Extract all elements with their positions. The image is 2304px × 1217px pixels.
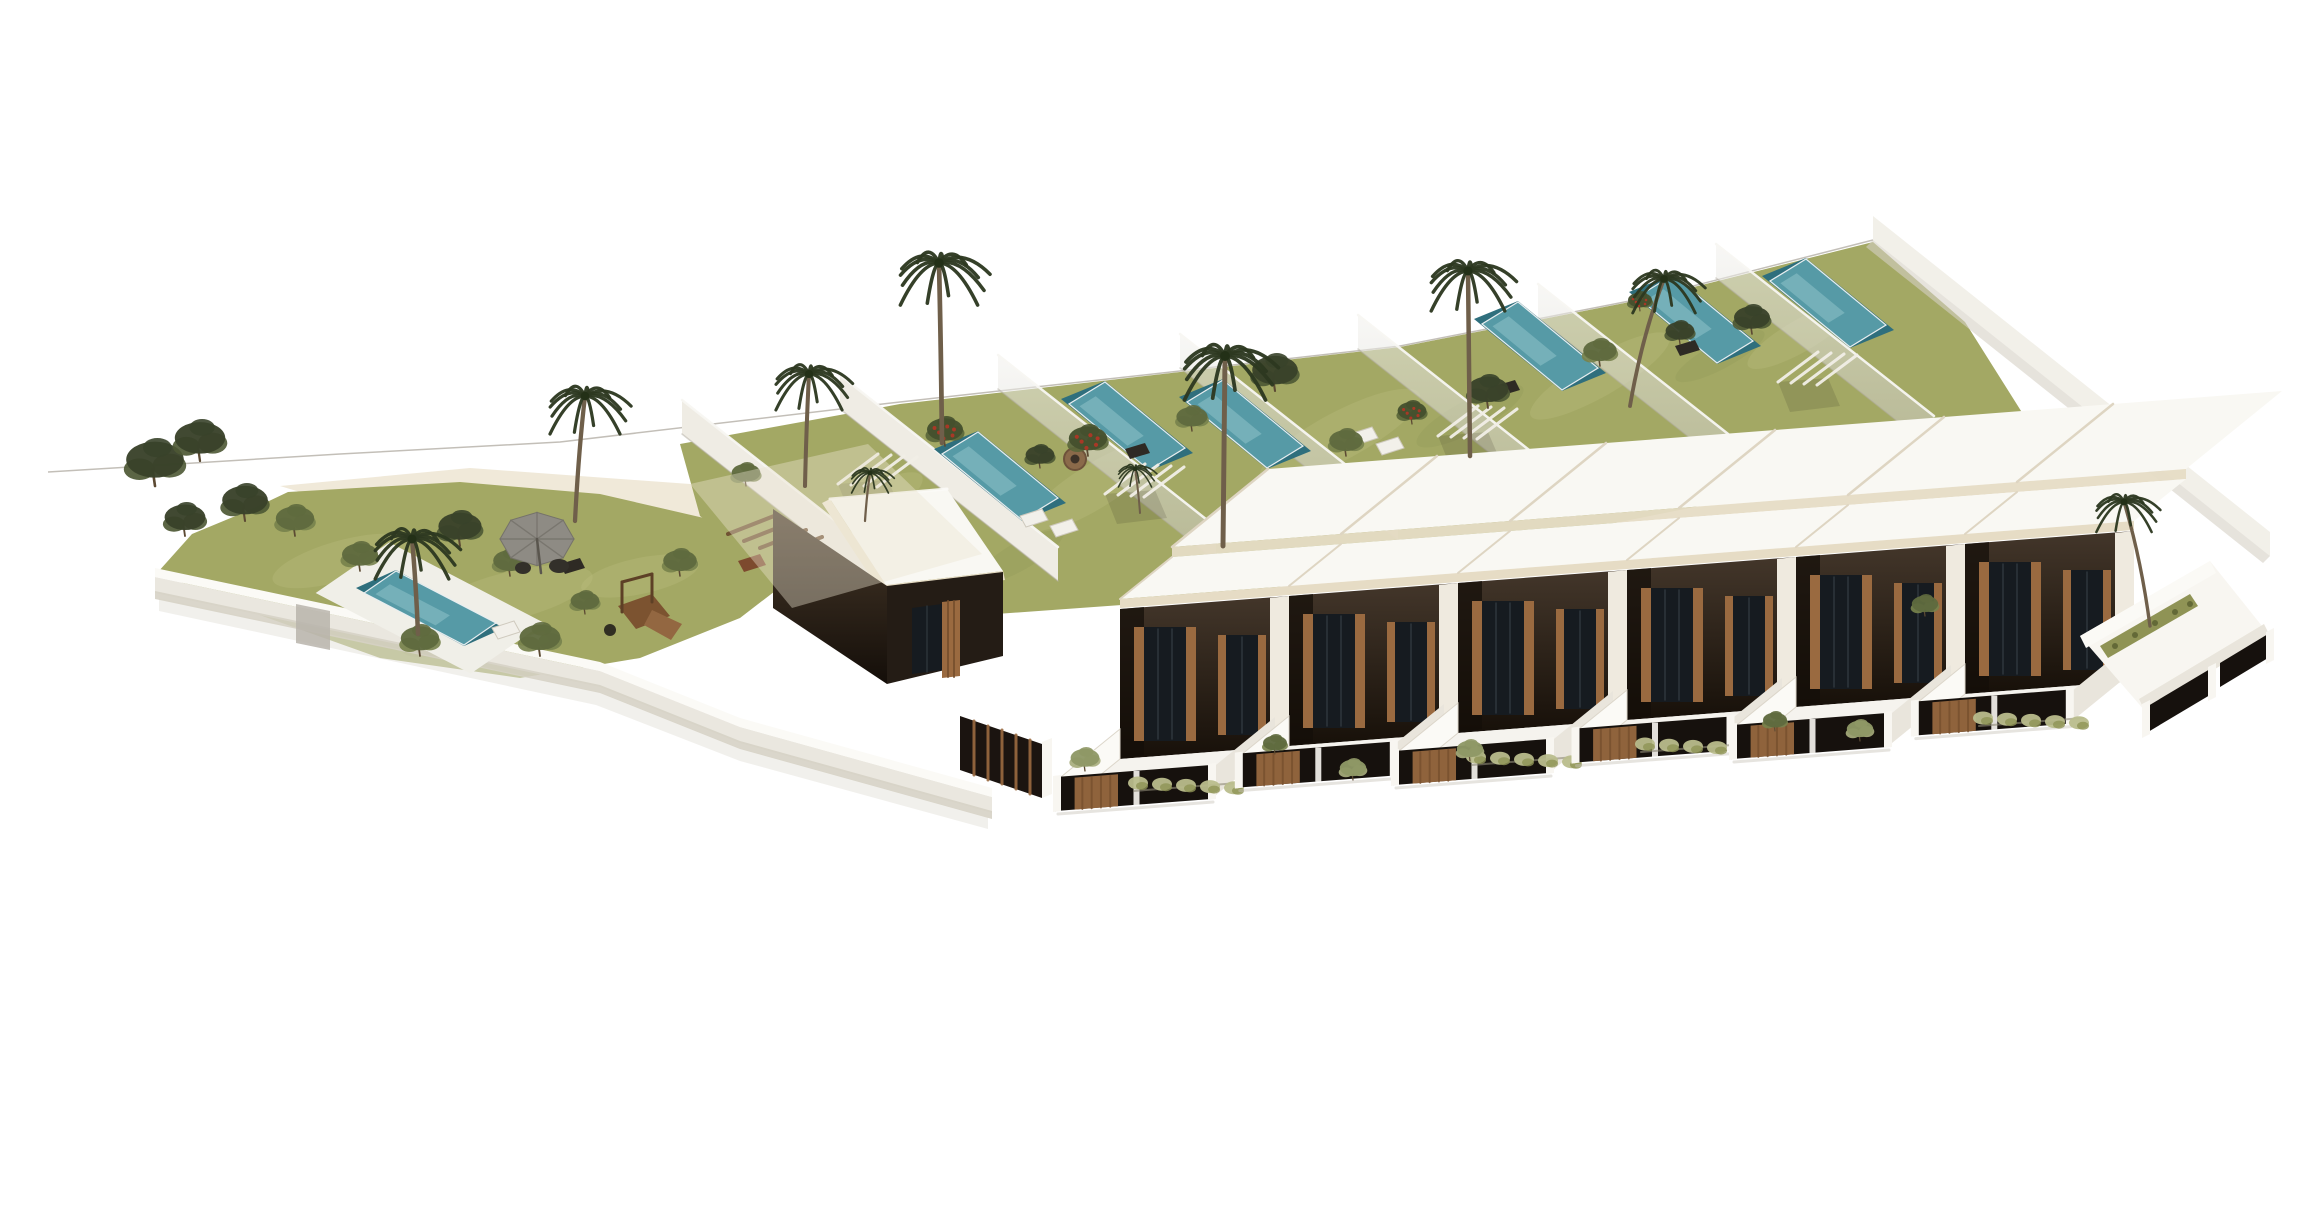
planter-shrub [2005,718,2017,726]
window-wood [2031,562,2041,676]
fruit [951,434,955,438]
foliage [1339,428,1356,439]
fence-gate [1256,751,1299,786]
window-wood [1934,583,1942,683]
foliage [1079,747,1093,757]
window-glass [1144,627,1186,741]
planter-shrub [1208,786,1220,794]
window-wood [1524,601,1534,715]
planter-dot [2152,620,2158,626]
villa-garage-post [1042,738,1052,798]
window-wood [1303,614,1313,728]
planter-shrub [1498,757,1510,765]
planter-shrub [2077,722,2089,730]
palm-crown [1464,267,1473,276]
foliage [1855,719,1868,728]
foliage [1745,304,1763,316]
window-glass [1313,614,1355,728]
fruit [1409,416,1412,419]
window-glass [1482,601,1524,715]
window-wood [1387,622,1395,722]
window-wood [1693,588,1703,702]
tree [173,419,228,461]
window-wood [1894,583,1902,683]
palm-crown [2121,499,2128,506]
villa-wood-door [942,600,960,678]
fruit [933,426,937,430]
window-glass [1651,588,1693,702]
corner-post-1 [2142,700,2150,738]
fence-post [1391,749,1399,786]
fruit [1094,443,1098,447]
fruit [1418,409,1421,412]
planter-shrub [1522,758,1534,766]
corner-post-2 [2208,663,2216,701]
window-wood [1258,635,1266,735]
window-wood [1810,575,1820,689]
fence-post [1053,775,1061,812]
fruit [1406,412,1409,415]
window-wood [1596,609,1604,709]
palm-crown [934,258,943,267]
palm-crown [408,535,417,544]
window-wood [1765,596,1773,696]
palm-crown [868,471,873,476]
fence-post [1884,711,1892,748]
fence-post [1729,723,1737,760]
palm-trunk [939,263,942,443]
planter-shrub [1160,783,1172,791]
foliage [1480,374,1500,388]
planter-shrub [2053,721,2065,729]
foliage [1348,758,1361,767]
planter-shrub [1643,743,1655,751]
window-wood [1725,596,1733,696]
fence-gate [1075,774,1118,809]
planter-dot [2172,609,2178,615]
palm-trunk [1223,356,1225,546]
foliage [412,624,431,637]
architectural-rendering [40,16,2304,1201]
palm-trunk [1468,271,1470,456]
foliage [579,590,593,600]
foliage [1034,444,1048,454]
palm-crown [805,370,813,378]
fruit [952,428,956,432]
palm-crown [1133,467,1137,471]
planter-shrub [1136,782,1148,790]
foliage [1593,338,1610,349]
window-wood [1427,622,1435,722]
foliage [1920,594,1933,603]
fruit [1402,408,1405,411]
foliage [236,483,259,498]
window-glass [1820,575,1862,689]
foliage [1465,739,1478,748]
planter-shrub [2029,719,2041,727]
foliage [451,510,473,524]
planter-shrub [1474,756,1486,764]
foliage [1186,405,1202,415]
fruit [945,425,949,429]
fruit [1084,446,1088,450]
foliage [353,541,371,553]
fence-gate [1413,748,1456,783]
window-wood [1556,609,1564,709]
fruit [1096,436,1100,440]
foliage [143,438,172,457]
fruit [1075,435,1079,439]
palm-crown [1660,275,1668,283]
parasol-chair [549,559,569,573]
fruit [1080,440,1084,444]
foliage [532,622,552,636]
fruit [1412,407,1415,410]
planter-dot [2187,601,2193,607]
planter-shrub [1715,747,1727,755]
window-wood [1218,635,1226,735]
palm-crown [1220,351,1230,361]
fruit [1416,414,1419,417]
window-wood [1186,627,1196,741]
wall-gate [296,604,330,650]
fence-post [1315,748,1321,782]
planter-shrub [1184,784,1196,792]
window-wood [1641,588,1651,702]
foliage [287,504,306,517]
foliage [1270,734,1282,742]
foliage [177,502,197,516]
playground-tire [604,624,616,636]
planter-shrub [1667,744,1679,752]
fence-post [1911,700,1919,737]
window-wood [1472,601,1482,715]
fence-gate [1593,726,1636,761]
foliage [673,548,690,559]
firepit-center [1071,455,1080,464]
fence-post [1235,752,1243,789]
planter-shrub [1546,760,1558,768]
fruit [1088,433,1092,437]
fence-post [1810,719,1816,753]
planter-shrub [1981,717,1993,725]
planter-dot [2112,643,2118,649]
render-canvas [40,16,2304,1201]
window-wood [2063,570,2071,670]
fence-post [1572,727,1580,764]
window-wood [1979,562,1989,676]
palm-crown [581,392,590,401]
window-wood [1134,627,1144,741]
fruit [1644,303,1647,306]
corner-post-3 [2266,628,2274,664]
parasol-chair [515,562,531,574]
fence-gate [1932,699,1975,734]
foliage [1674,320,1688,330]
window-wood [1355,614,1365,728]
fruit [1645,299,1648,302]
window-wood [1862,575,1872,689]
foliage [190,419,215,436]
foliage [1770,711,1782,719]
window-glass [1989,562,2031,676]
planter-shrub [1691,745,1703,753]
planter-dot [2132,632,2138,638]
